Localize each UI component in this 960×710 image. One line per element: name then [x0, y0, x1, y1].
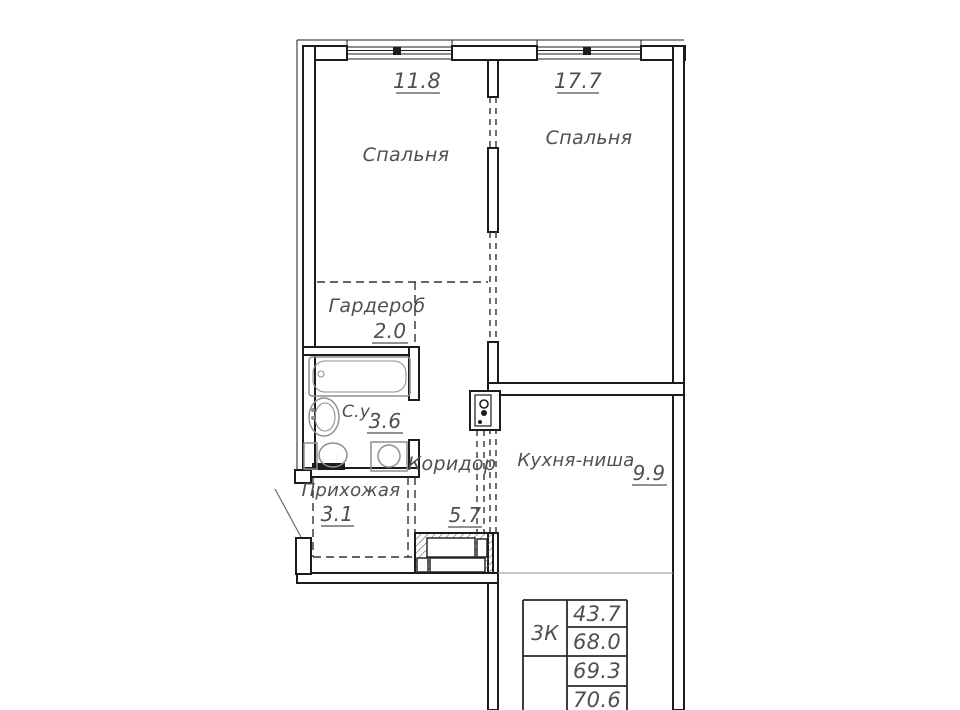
room-labels: Спальня 11.8 Спальня 17.7 Гардероб 2.0 С… [302, 69, 667, 527]
room-label-corridor: Коридор [408, 453, 496, 475]
area-label-corridor: 5.7 [449, 503, 482, 527]
window-icon [347, 47, 452, 59]
bathtub-icon [309, 357, 410, 396]
electrical-panel-icon [470, 391, 500, 430]
table-value: 43.7 [573, 602, 621, 626]
area-table: 3К 43.7 68.0 69.3 70.6 [523, 600, 627, 710]
room-label-bedroom-1: Спальня [363, 144, 450, 166]
table-value: 70.6 [573, 688, 621, 710]
entrance-door-icon [275, 489, 301, 537]
area-label-kitchen-niche: 9.9 [633, 461, 666, 485]
room-label-kitchen-niche: Кухня-ниша [517, 450, 634, 471]
area-label-bedroom-2: 17.7 [554, 69, 602, 93]
area-label-bedroom-1: 11.8 [393, 69, 441, 93]
kitchen-counter-icon [415, 533, 493, 573]
room-label-bedroom-2: Спальня [546, 127, 633, 149]
table-value: 68.0 [573, 630, 621, 654]
floor-plan: Спальня 11.8 Спальня 17.7 Гардероб 2.0 С… [0, 0, 960, 710]
room-label-hallway: Прихожая [302, 480, 401, 501]
area-label-hallway: 3.1 [321, 502, 354, 526]
room-label-wardrobe: Гардероб [329, 295, 426, 317]
area-label-wardrobe: 2.0 [374, 319, 407, 343]
table-value: 69.3 [573, 659, 621, 683]
floor-plan-page: Спальня 11.8 Спальня 17.7 Гардероб 2.0 С… [0, 0, 960, 710]
washing-machine-icon [371, 442, 407, 471]
window-icon [537, 47, 641, 59]
sink-icon [309, 398, 339, 436]
table-unit-type: 3К [531, 621, 559, 645]
area-label-bathroom: 3.6 [369, 409, 402, 433]
